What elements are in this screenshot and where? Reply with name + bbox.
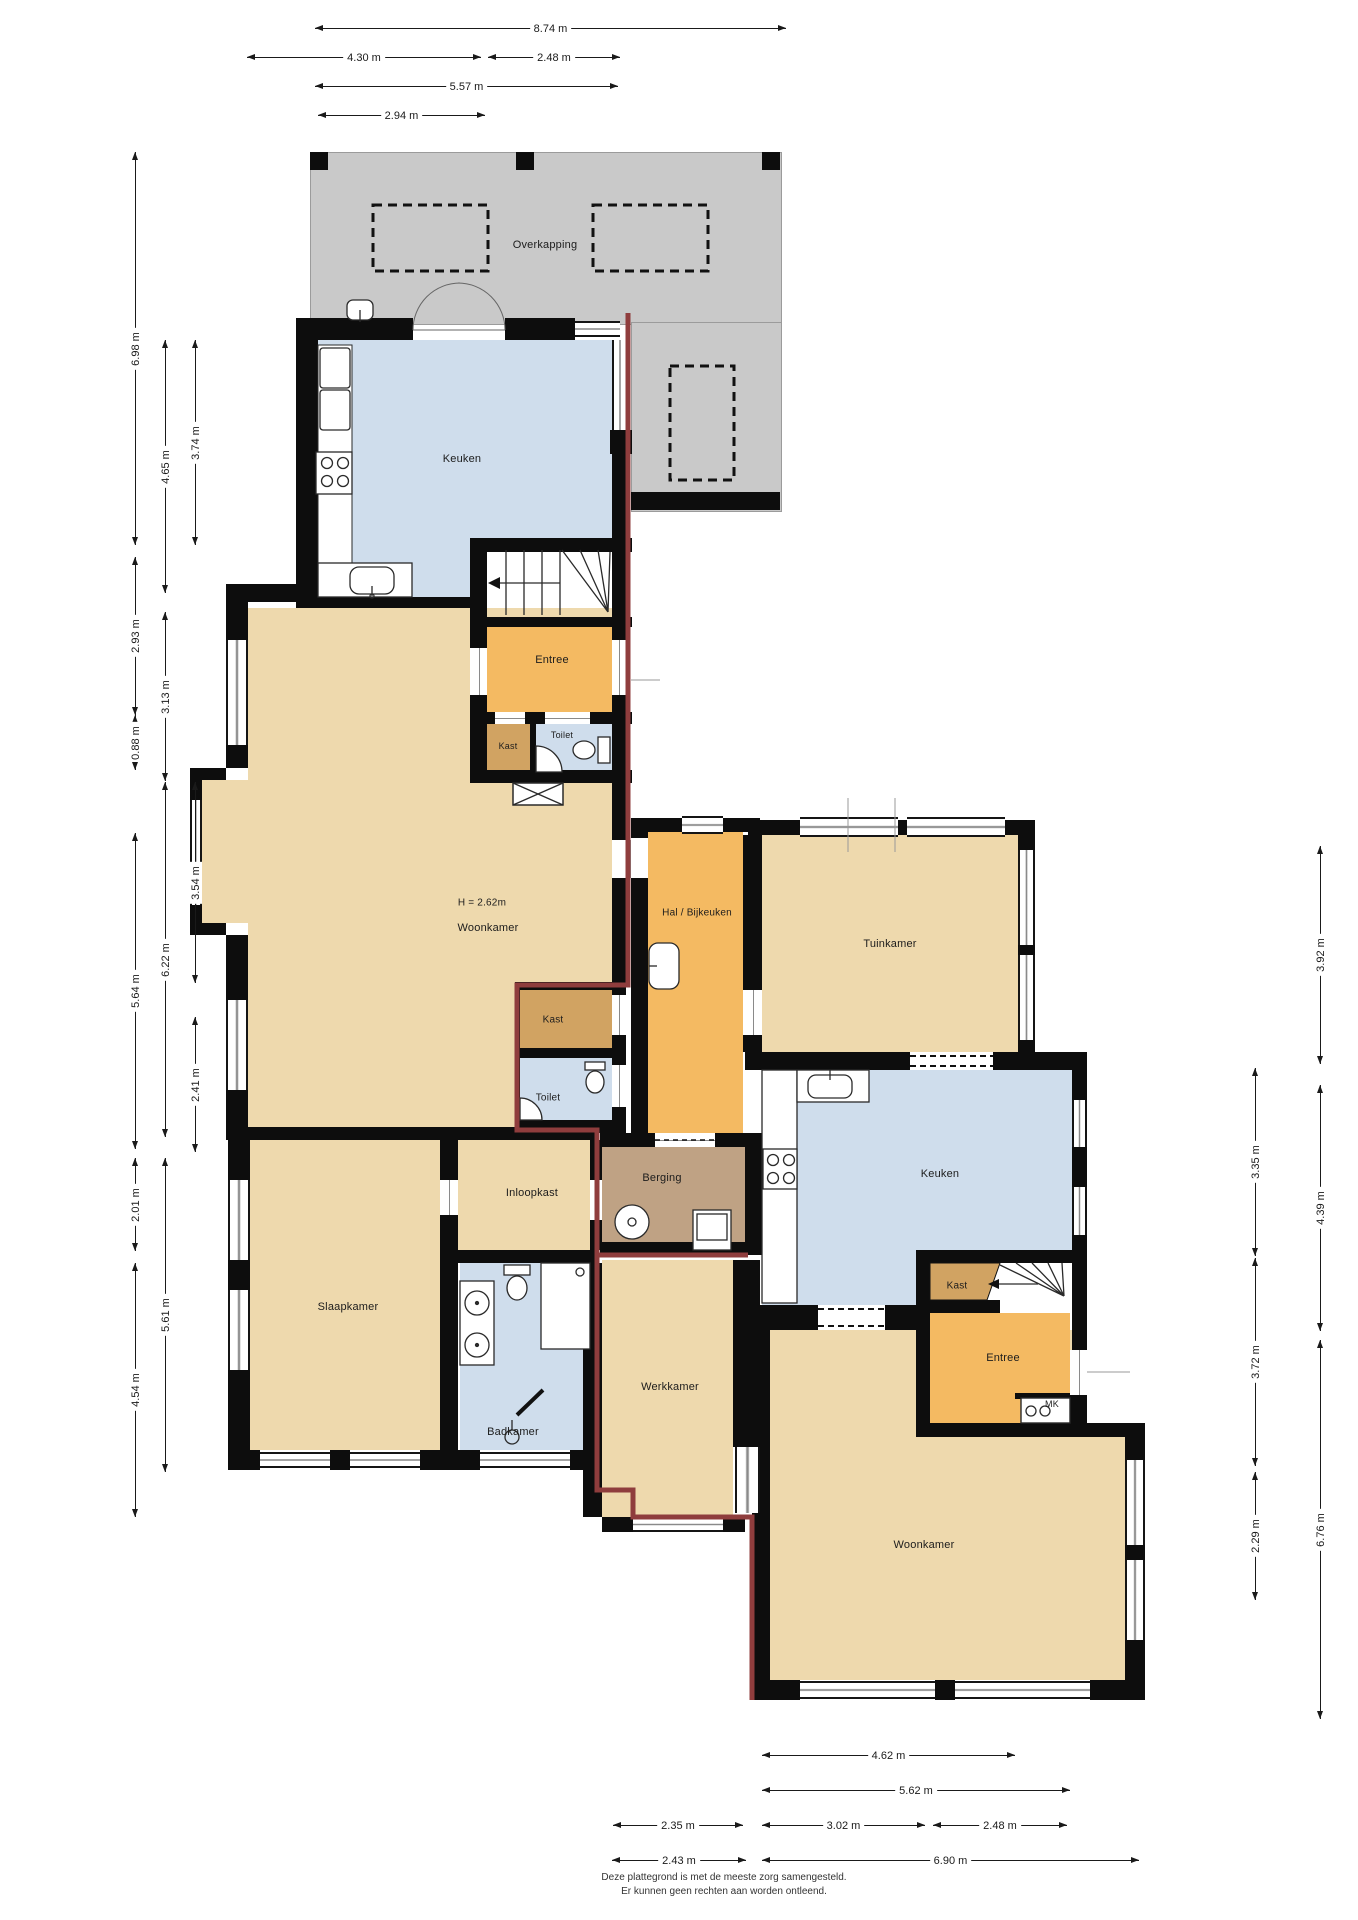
room-label-berging: Berging <box>642 1172 681 1184</box>
dimension: 3.54 m <box>195 782 196 983</box>
dimension: 0.88 m <box>135 715 136 770</box>
dimension: 2.48 m <box>488 57 620 58</box>
disclaimer-line-1: Deze plattegrond is met de meeste zorg s… <box>601 1872 846 1883</box>
room-label-kast-midden: Kast <box>543 1015 564 1026</box>
dimension: 5.64 m <box>135 833 136 1149</box>
dimension: 3.02 m <box>762 1825 925 1826</box>
dimension: 3.13 m <box>165 612 166 781</box>
room-label-keuken-boven: Keuken <box>443 453 482 465</box>
room-label-toilet-boven: Toilet <box>551 730 573 740</box>
dimension: 2.29 m <box>1255 1472 1256 1600</box>
disclaimer-line-2: Er kunnen geen rechten aan worden ontlee… <box>621 1886 827 1897</box>
dimension: 2.94 m <box>318 115 485 116</box>
plan-linework <box>0 0 1358 1920</box>
room-label-keuken-rechts: Keuken <box>921 1168 960 1180</box>
room-label-woonkamer-links: Woonkamer <box>458 922 519 934</box>
dimension: 3.74 m <box>195 340 196 545</box>
ceiling-height-note: H = 2.62m <box>458 898 506 909</box>
floorplan-canvas: Overkapping Keuken Entree Kast Toilet H … <box>0 0 1358 1920</box>
dimension: 4.65 m <box>165 340 166 593</box>
room-label-hal-bijkeuken: Hal / Bijkeuken <box>662 908 732 919</box>
dimension: 6.22 m <box>165 782 166 1137</box>
room-label-woonkamer-rechts: Woonkamer <box>894 1539 955 1551</box>
dimension: 4.30 m <box>247 57 481 58</box>
dimension: 3.72 m <box>1255 1258 1256 1466</box>
room-label-mk: MK <box>1045 1399 1059 1409</box>
room-label-tuinkamer: Tuinkamer <box>863 938 916 950</box>
dimension: 2.93 m <box>135 557 136 715</box>
dimension: 5.61 m <box>165 1158 166 1472</box>
dimension: 3.35 m <box>1255 1068 1256 1256</box>
dimension: 4.39 m <box>1320 1085 1321 1331</box>
room-label-kast-boven: Kast <box>499 741 518 751</box>
dimension: 2.48 m <box>933 1825 1067 1826</box>
room-label-overkapping: Overkapping <box>513 239 578 251</box>
room-label-werkkamer: Werkkamer <box>641 1381 699 1393</box>
dimension: 6.76 m <box>1320 1340 1321 1719</box>
dimension: 2.35 m <box>613 1825 743 1826</box>
room-label-slaapkamer: Slaapkamer <box>318 1301 379 1313</box>
dimension: 4.54 m <box>135 1263 136 1517</box>
room-label-entree-boven: Entree <box>535 654 569 666</box>
dimension: 8.74 m <box>315 28 786 29</box>
dimension: 2.43 m <box>612 1860 746 1861</box>
dimension: 5.57 m <box>315 86 618 87</box>
dimension: 2.01 m <box>135 1158 136 1251</box>
room-label-kast-rechts: Kast <box>947 1281 968 1292</box>
dimension: 6.98 m <box>135 152 136 545</box>
dimension: 3.92 m <box>1320 846 1321 1064</box>
room-label-toilet-midden: Toilet <box>536 1093 561 1104</box>
dimension: 6.90 m <box>762 1860 1139 1861</box>
dimension: 5.62 m <box>762 1790 1070 1791</box>
room-label-entree-rechts: Entree <box>986 1352 1020 1364</box>
dimension: 2.41 m <box>195 1017 196 1152</box>
room-label-inloopkast: Inloopkast <box>506 1187 558 1199</box>
room-label-badkamer: Badkamer <box>487 1426 539 1438</box>
dimension: 4.62 m <box>762 1755 1015 1756</box>
